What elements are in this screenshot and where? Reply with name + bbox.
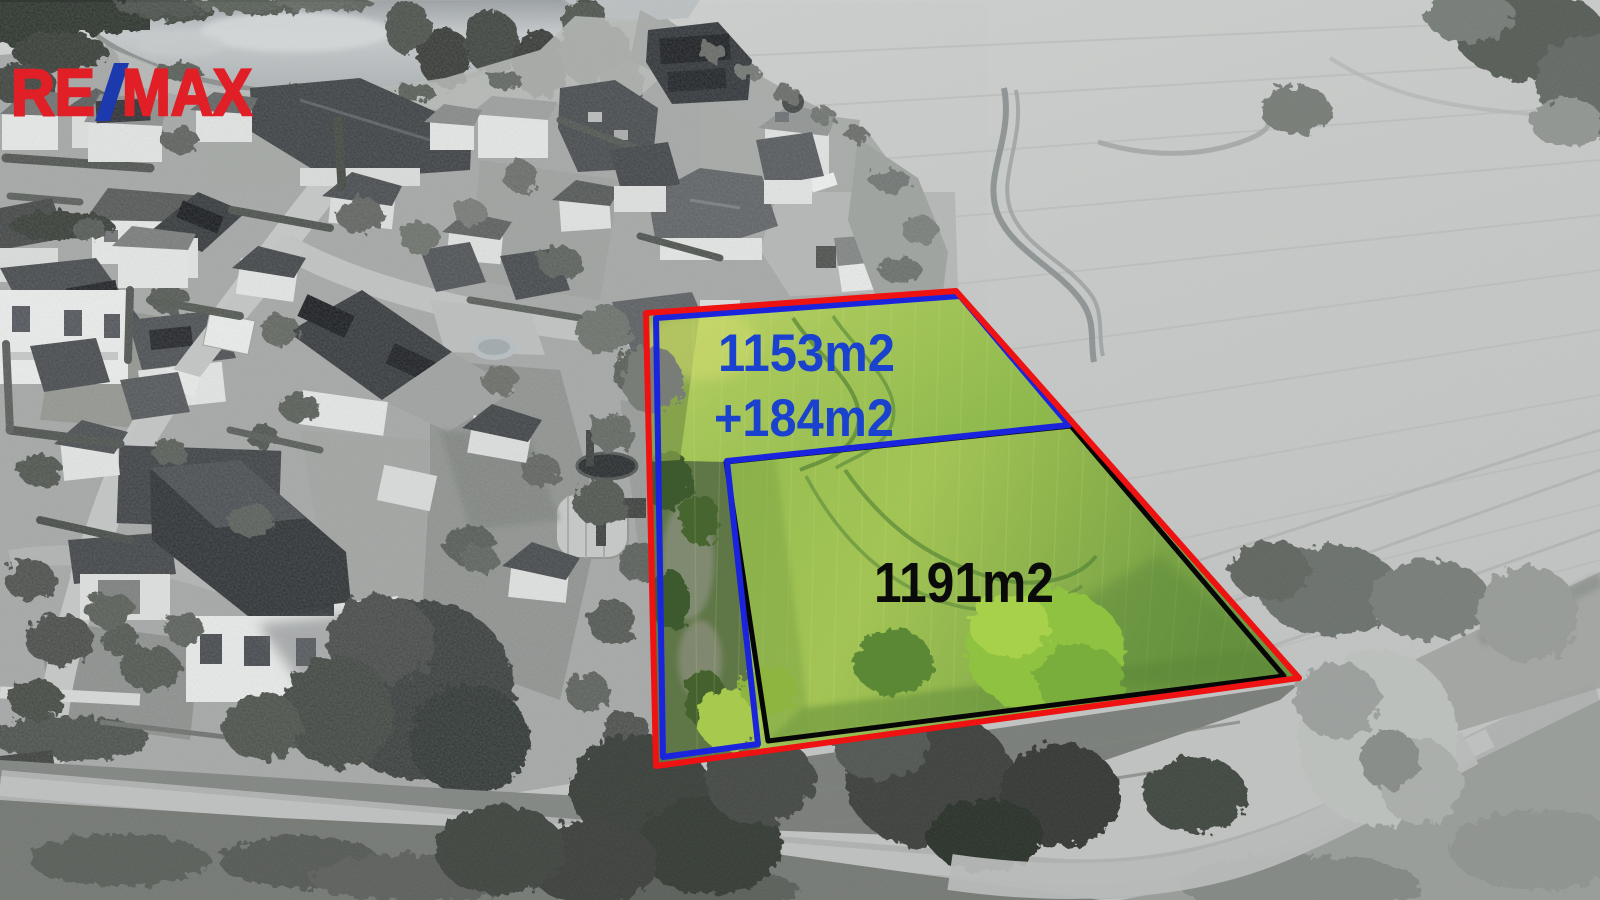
svg-text:MAX: MAX [122,55,252,129]
svg-text:1191m2: 1191m2 [874,551,1054,615]
svg-text:RE: RE [11,55,95,129]
svg-text:1153m2: 1153m2 [718,324,895,383]
svg-text:+184m2: +184m2 [714,389,894,448]
